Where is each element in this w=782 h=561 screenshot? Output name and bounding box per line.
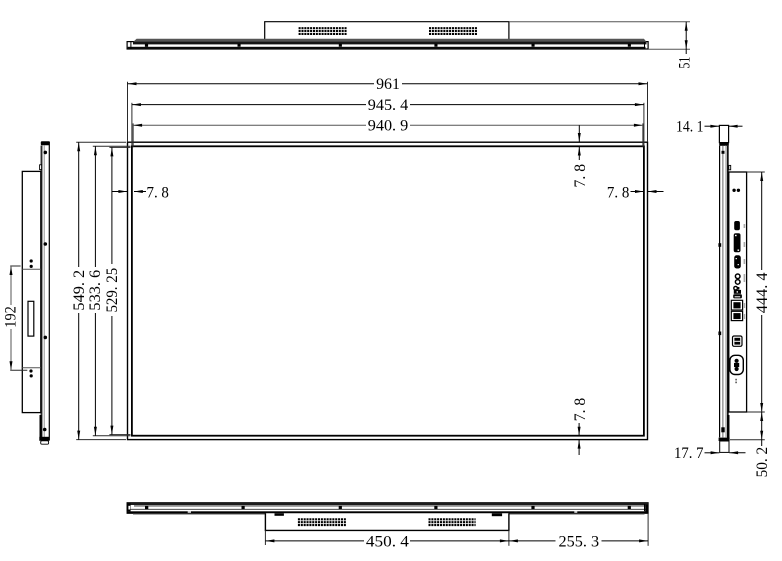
svg-text:14. 1: 14. 1 <box>676 116 704 135</box>
svg-text:444. 4: 444. 4 <box>752 273 771 314</box>
svg-text:51: 51 <box>675 57 694 69</box>
svg-text:7. 8: 7. 8 <box>570 398 589 422</box>
svg-text:961: 961 <box>376 74 400 93</box>
svg-text:7. 8: 7. 8 <box>570 164 589 188</box>
svg-text:192: 192 <box>1 306 20 327</box>
svg-text:945. 4: 945. 4 <box>368 95 409 114</box>
svg-text:50. 2: 50. 2 <box>752 447 771 478</box>
svg-text:255. 3: 255. 3 <box>559 531 600 550</box>
svg-text:529. 25: 529. 25 <box>102 268 121 313</box>
svg-text:7. 8: 7. 8 <box>147 183 169 202</box>
svg-text:7. 8: 7. 8 <box>607 182 629 201</box>
svg-text:17. 7: 17. 7 <box>674 443 704 462</box>
svg-text:940. 9: 940. 9 <box>368 116 409 135</box>
svg-text:450. 4: 450. 4 <box>366 531 409 550</box>
